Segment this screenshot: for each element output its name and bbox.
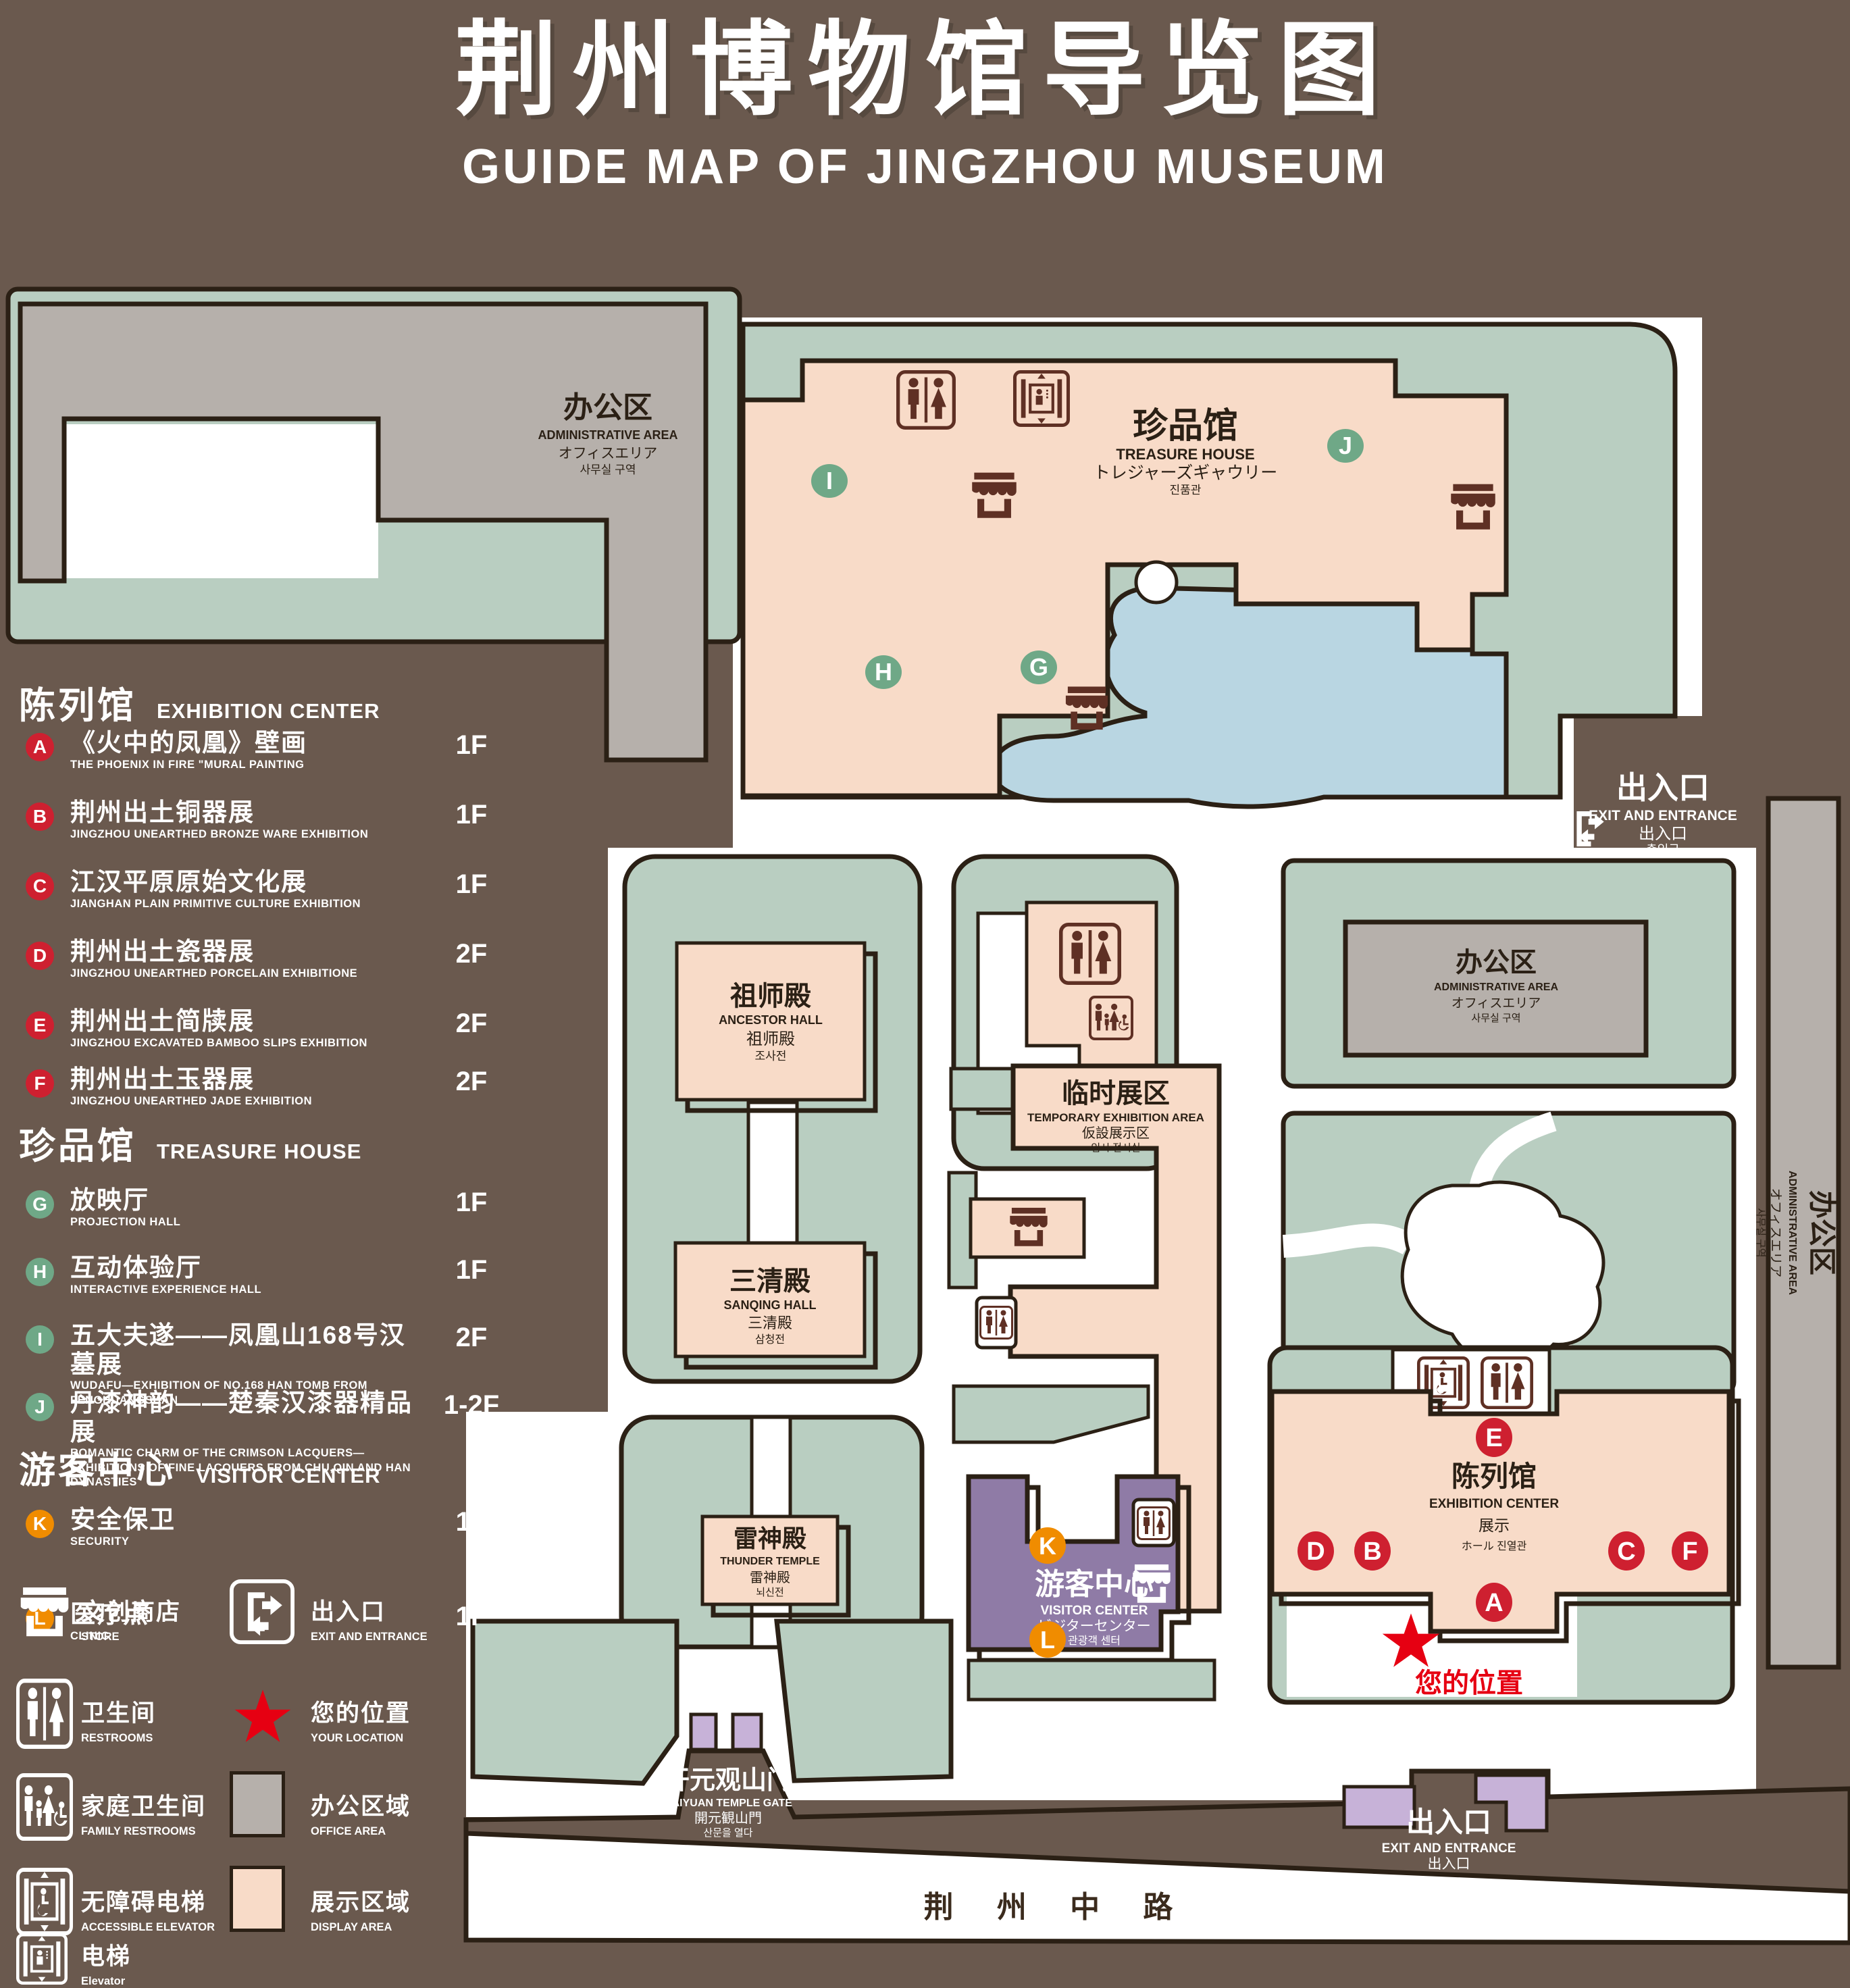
svg-text:ANCESTOR HALL: ANCESTOR HALL <box>719 1013 823 1027</box>
legend-store-label: 文创商店STORE <box>81 1593 181 1643</box>
svg-text:陈列馆: 陈列馆 <box>1451 1460 1537 1492</box>
svg-text:オフィスエリア: オフィスエリア <box>1451 996 1541 1011</box>
svg-text:산문을 열다: 산문을 열다 <box>703 1827 752 1839</box>
badge-B: B <box>26 802 54 831</box>
legend-display-swatch <box>230 1866 285 1932</box>
svg-text:출입구: 출입구 <box>1646 843 1680 857</box>
svg-text:G: G <box>1029 653 1048 681</box>
exit-booth <box>1344 1787 1414 1827</box>
legend-location-label: 您的位置YOUR LOCATION <box>311 1694 411 1745</box>
svg-text:B: B <box>1363 1537 1381 1566</box>
legend-family-icon <box>16 1773 73 1841</box>
svg-text:出入口: 出入口 <box>1428 1856 1470 1872</box>
svg-text:삼청전: 삼청전 <box>755 1333 785 1346</box>
lake-bridge <box>1136 562 1177 603</box>
green-strip <box>969 1660 1214 1700</box>
gate-pillar <box>691 1714 716 1750</box>
svg-text:出入口: 出入口 <box>1406 1806 1491 1838</box>
badge-A: A <box>26 733 54 761</box>
floor-F: 2F <box>431 1067 512 1097</box>
svg-text:EXHIBITION CENTER: EXHIBITION CENTER <box>1429 1497 1559 1511</box>
svg-text:三清殿: 三清殿 <box>748 1315 792 1331</box>
legend-item-D: D 荆州出土瓷器展JINGZHOU UNEARTHED PORCELAIN EX… <box>19 942 512 1004</box>
svg-text:祖师殿: 祖师殿 <box>730 982 811 1011</box>
svg-text:オフィスエリア: オフィスエリア <box>559 446 658 461</box>
floor-H: 1F <box>431 1255 512 1285</box>
floor-C: 1F <box>431 869 512 900</box>
svg-text:トレジャーズギャウリー: トレジャーズギャウリー <box>1094 463 1278 482</box>
legend-store-icon <box>16 1584 73 1641</box>
green-patch <box>951 1069 1017 1109</box>
svg-text:C: C <box>1617 1537 1635 1566</box>
legend-item-A: A 《火中的凤凰》壁画THE PHOENIX IN FIRE "MURAL PA… <box>19 733 512 795</box>
marker-I: I <box>811 464 848 498</box>
svg-text:사무실 구역: 사무실 구역 <box>1471 1013 1520 1024</box>
gate-flank-east <box>777 1621 951 1781</box>
exhibition-area: 陈列馆 EXHIBITION CENTER 展示 ホール 진열관 E D B C… <box>1270 1348 1739 1702</box>
legend-office-swatch <box>230 1771 285 1837</box>
marker-C: C <box>1608 1531 1645 1571</box>
section-title-zh: 陈列馆 <box>19 686 136 726</box>
svg-text:雷神殿: 雷神殿 <box>734 1525 806 1552</box>
svg-text:開元観山門: 開元観山門 <box>694 1810 762 1826</box>
svg-text:仮設展示区: 仮設展示区 <box>1082 1125 1150 1141</box>
svg-text:祖师殿: 祖师殿 <box>746 1030 795 1048</box>
badge-F: F <box>26 1069 54 1098</box>
section-title-en: EXHIBITION CENTER <box>157 699 380 723</box>
marker-H: H <box>865 655 902 689</box>
svg-text:办公区: 办公区 <box>1456 948 1537 977</box>
svg-text:TREASURE HOUSE: TREASURE HOUSE <box>1116 446 1254 463</box>
svg-text:THUNDER TEMPLE: THUNDER TEMPLE <box>720 1556 820 1567</box>
svg-text:ADMINISTRATIVE AREA: ADMINISTRATIVE AREA <box>1787 1171 1798 1295</box>
svg-text:D: D <box>1306 1537 1325 1566</box>
marker-A: A <box>1476 1583 1512 1622</box>
legend-item-G: G 放映厅PROJECTION HALL 1F <box>19 1190 512 1252</box>
svg-text:조사전: 조사전 <box>755 1050 787 1063</box>
floor-A: 1F <box>431 730 512 761</box>
svg-text:F: F <box>1682 1537 1697 1566</box>
legend-elevator-label: 电梯Elevator <box>81 1937 131 1988</box>
svg-text:办公区: 办公区 <box>563 391 652 424</box>
treasure-area: 珍品馆 TREASURE HOUSE トレジャーズギャウリー 진품관 I J H… <box>743 324 1675 807</box>
floor-I: 2F <box>431 1323 512 1353</box>
marker-E: E <box>1476 1418 1512 1457</box>
svg-text:J: J <box>1339 432 1352 459</box>
svg-text:ADMINISTRATIVE AREA: ADMINISTRATIVE AREA <box>1434 982 1558 993</box>
badge-I: I <box>26 1325 54 1354</box>
svg-text:EXIT AND ENTRANCE: EXIT AND ENTRANCE <box>1382 1841 1516 1856</box>
legend-exit-label: 出入口EXIT AND ENTRANCE <box>311 1593 428 1643</box>
legend-restrooms-label: 卫生间RESTROOMS <box>81 1694 156 1745</box>
floor-B: 1F <box>431 800 512 830</box>
legend-item-E: E 荆州出土简牍展JINGZHOU EXCAVATED BAMBOO SLIPS… <box>19 1011 512 1073</box>
svg-text:진품관: 진품관 <box>1170 484 1202 496</box>
svg-text:사무실 구역: 사무실 구역 <box>1755 1208 1766 1257</box>
floor-E: 2F <box>431 1009 512 1039</box>
badge-E: E <box>26 1011 54 1040</box>
legend-item-H: H 互动体验厅INTERACTIVE EXPERIENCE HALL 1F <box>19 1258 512 1320</box>
svg-text:L: L <box>1040 1626 1055 1654</box>
section-title-en: VISITOR CENTER <box>196 1464 381 1487</box>
admin-east-area: 办公区 ADMINISTRATIVE AREA オフィスエリア 사무실 구역 <box>1755 798 1839 1667</box>
mid-right-area: 办公区 ADMINISTRATIVE AREA オフィスエリア 사무실 구역 <box>1283 861 1734 1393</box>
legend-exit-icon <box>230 1579 294 1644</box>
exit-ne-label: 出入口 EXIT AND ENTRANCE 出入口 출입구 <box>1589 770 1737 857</box>
legend-restrooms-icon <box>16 1679 73 1749</box>
svg-text:三清殿: 三清殿 <box>729 1267 811 1296</box>
svg-text:I: I <box>826 467 833 494</box>
legend: 陈列馆EXHIBITION CENTER A 《火中的凤凰》壁画THE PHOE… <box>0 0 540 1978</box>
legend-accessible-label: 无障碍电梯ACCESSIBLE ELEVATOR <box>81 1883 215 1934</box>
badge-H: H <box>26 1258 54 1286</box>
badge-K: K <box>26 1510 54 1538</box>
svg-text:ホール 진열관: ホール 진열관 <box>1462 1540 1527 1552</box>
thunder-block: 雷神殿 THUNDER TEMPLE 雷神殿 뇌신전 <box>621 1417 922 1647</box>
badge-C: C <box>26 872 54 900</box>
floor-J: 1-2F <box>431 1390 512 1421</box>
svg-text:관광객 센터: 관광객 센터 <box>1068 1635 1121 1647</box>
legend-elevator-icon <box>16 1933 68 1985</box>
shop-room <box>971 1199 1084 1257</box>
legend-section-treasure: 珍品馆TREASURE HOUSE <box>19 1116 361 1169</box>
svg-text:E: E <box>1485 1424 1502 1452</box>
marker-F: F <box>1672 1531 1708 1571</box>
svg-text:オフィスエリア: オフィスエリア <box>1768 1188 1782 1278</box>
marker-L: L <box>1029 1621 1066 1658</box>
gate-pillar <box>733 1714 761 1750</box>
legend-item-B: B 荆州出土铜器展JINGZHOU UNEARTHED BRONZE WARE … <box>19 802 512 865</box>
svg-text:办公区: 办公区 <box>1806 1190 1838 1275</box>
legend-family-label: 家庭卫生间FAMILY RESTROOMS <box>81 1787 206 1838</box>
svg-text:EXIT AND ENTRANCE: EXIT AND ENTRANCE <box>1589 808 1737 823</box>
section-title-zh: 游客中心 <box>19 1450 176 1491</box>
path-corridor <box>748 1102 797 1248</box>
svg-text:A: A <box>1485 1589 1503 1617</box>
svg-text:KAIYUAN TEMPLE GATE: KAIYUAN TEMPLE GATE <box>664 1798 792 1809</box>
legend-item-C: C 江汉平原原始文化展JIANGHAN PLAIN PRIMITIVE CULT… <box>19 872 512 934</box>
floor-G: 1F <box>431 1188 512 1218</box>
svg-text:K: K <box>1039 1532 1056 1560</box>
svg-text:珍品馆: 珍品馆 <box>1133 407 1238 446</box>
section-title-zh: 珍品馆 <box>19 1126 136 1167</box>
marker-G: G <box>1021 651 1057 684</box>
legend-accessible-icon <box>16 1868 73 1935</box>
svg-text:出入口: 出入口 <box>1616 770 1710 805</box>
your-location-label: 您的位置 <box>1415 1668 1523 1698</box>
floor-K: 1F <box>431 1507 512 1537</box>
marker-J: J <box>1327 429 1364 463</box>
legend-display-label: 展示区域DISPLAY AREA <box>311 1883 411 1934</box>
legend-section-exhibition: 陈列馆EXHIBITION CENTER <box>19 676 380 729</box>
marker-K: K <box>1029 1527 1066 1564</box>
legend-item-K: K 安全保卫SECURITY 1F <box>19 1510 512 1572</box>
svg-text:临时展区: 临时展区 <box>1062 1079 1170 1108</box>
legend-section-visitor: 游客中心VISITOR CENTER <box>19 1440 381 1494</box>
marker-B: B <box>1354 1531 1391 1571</box>
svg-text:展示: 展示 <box>1479 1517 1510 1534</box>
section-title-en: TREASURE HOUSE <box>157 1140 361 1163</box>
svg-text:임시 전시실: 임시 전시실 <box>1091 1142 1140 1154</box>
svg-text:SANQING HALL: SANQING HALL <box>724 1298 817 1312</box>
svg-text:VISITOR CENTER: VISITOR CENTER <box>1040 1604 1148 1618</box>
svg-text:H: H <box>875 658 892 686</box>
svg-text:사무실 구역: 사무실 구역 <box>580 463 636 476</box>
svg-text:뇌신전: 뇌신전 <box>756 1587 783 1598</box>
badge-D: D <box>26 942 54 970</box>
svg-text:开元观山门: 开元观山门 <box>664 1766 792 1795</box>
road-label: 荆 州 中 路 <box>924 1891 1191 1924</box>
floor-L: 1F <box>431 1602 512 1632</box>
svg-text:出入口: 出入口 <box>1639 825 1687 843</box>
svg-text:TEMPORARY EXHIBITION AREA: TEMPORARY EXHIBITION AREA <box>1027 1111 1204 1124</box>
halls-column: 祖师殿 ANCESTOR HALL 祖师殿 조사전 三清殿 SANQING HA… <box>625 857 920 1381</box>
legend-location-star <box>234 1687 292 1745</box>
svg-text:雷神殿: 雷神殿 <box>750 1570 790 1585</box>
badge-J: J <box>26 1393 54 1421</box>
svg-text:ADMINISTRATIVE AREA: ADMINISTRATIVE AREA <box>538 428 678 442</box>
marker-D: D <box>1297 1531 1334 1571</box>
legend-item-I: I 五大夫遂——凤凰山168号汉墓展WUDAFU—EXHIBITION OF N… <box>19 1325 512 1387</box>
badge-G: G <box>26 1190 54 1219</box>
floor-D: 2F <box>431 939 512 969</box>
legend-office-label: 办公区域OFFICE AREA <box>311 1787 411 1838</box>
